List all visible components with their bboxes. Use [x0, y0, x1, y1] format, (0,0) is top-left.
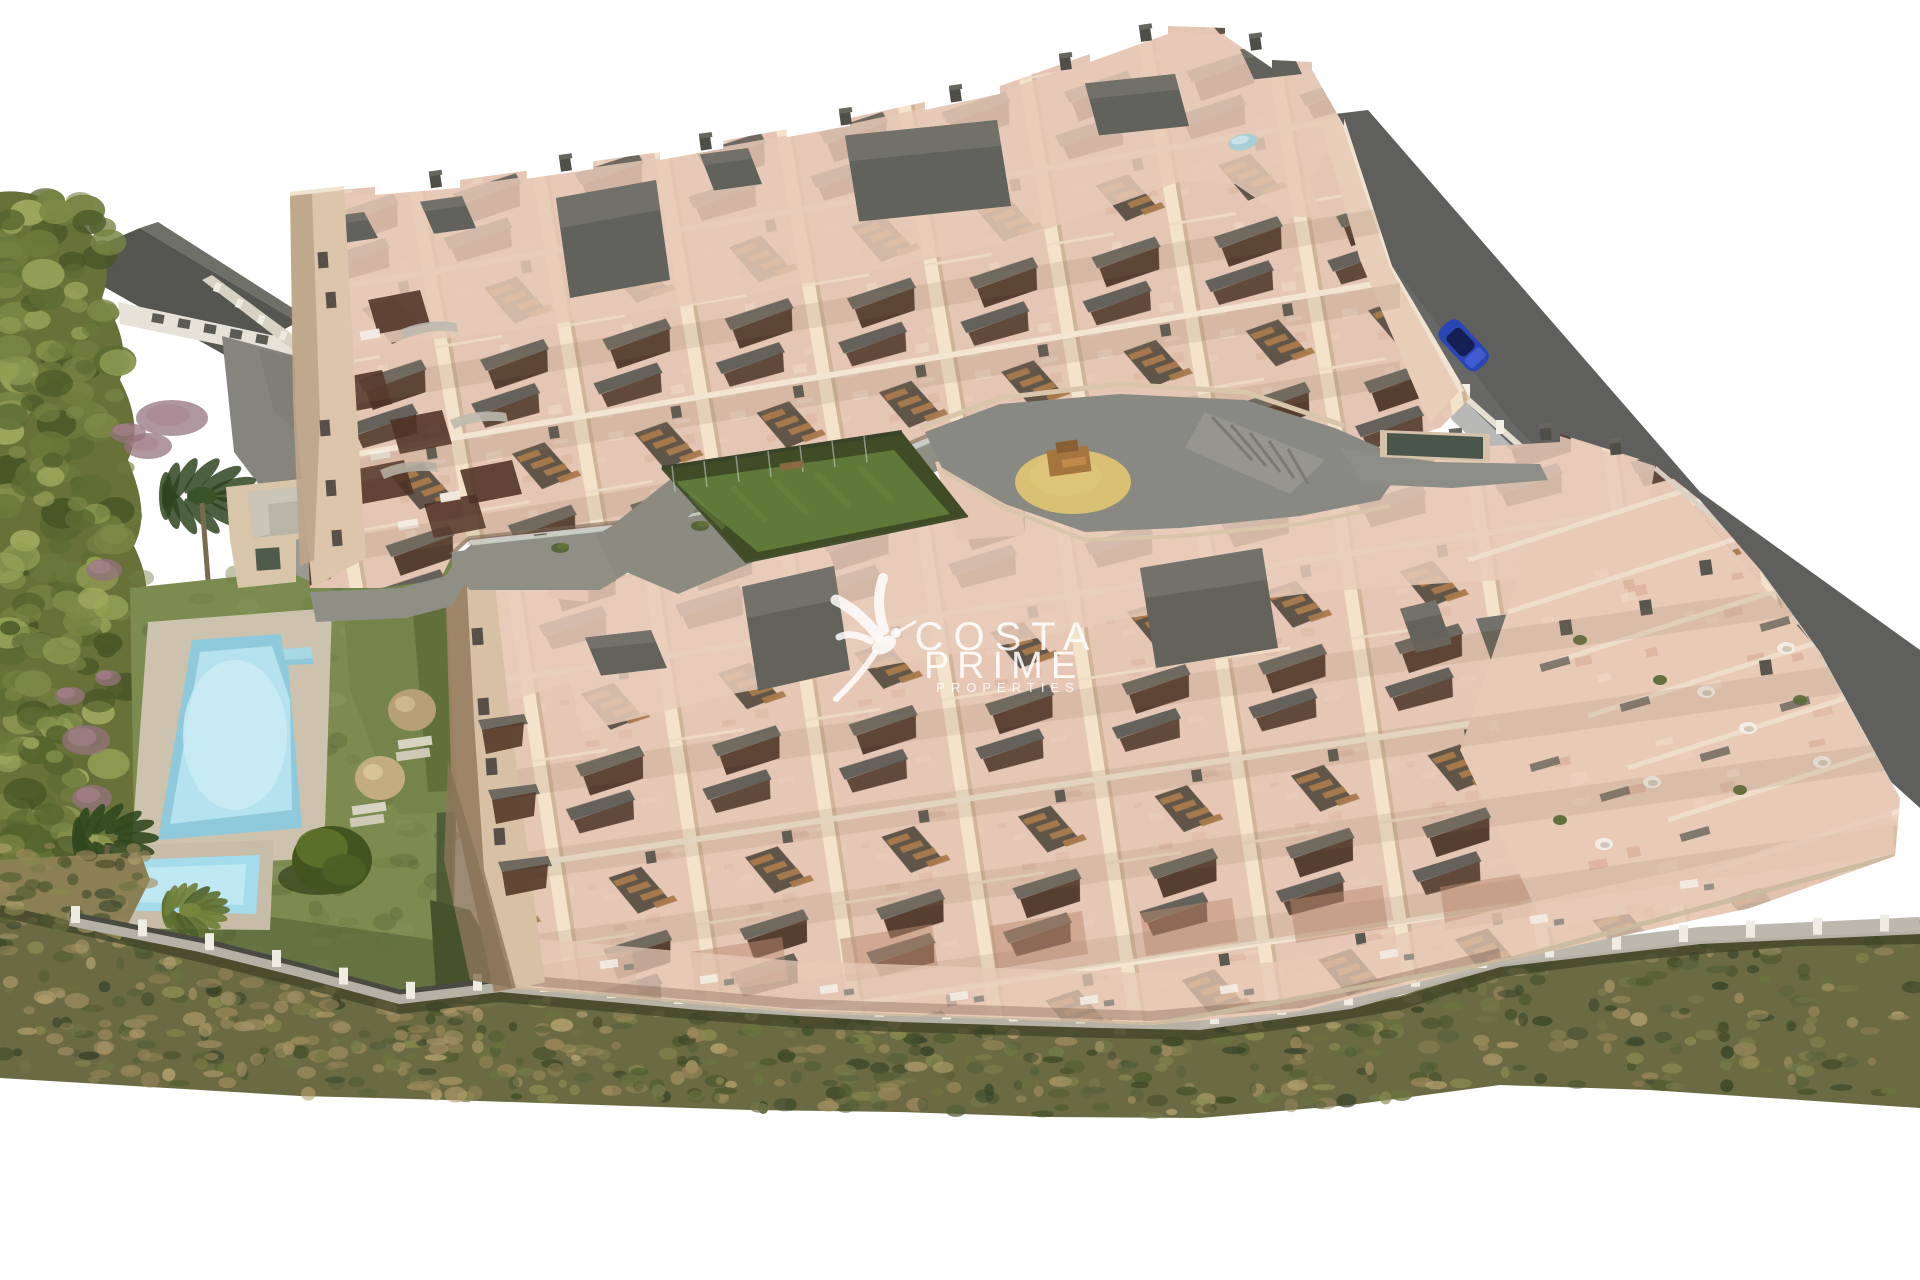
svg-text:PROPERTIES: PROPERTIES [936, 680, 1080, 695]
